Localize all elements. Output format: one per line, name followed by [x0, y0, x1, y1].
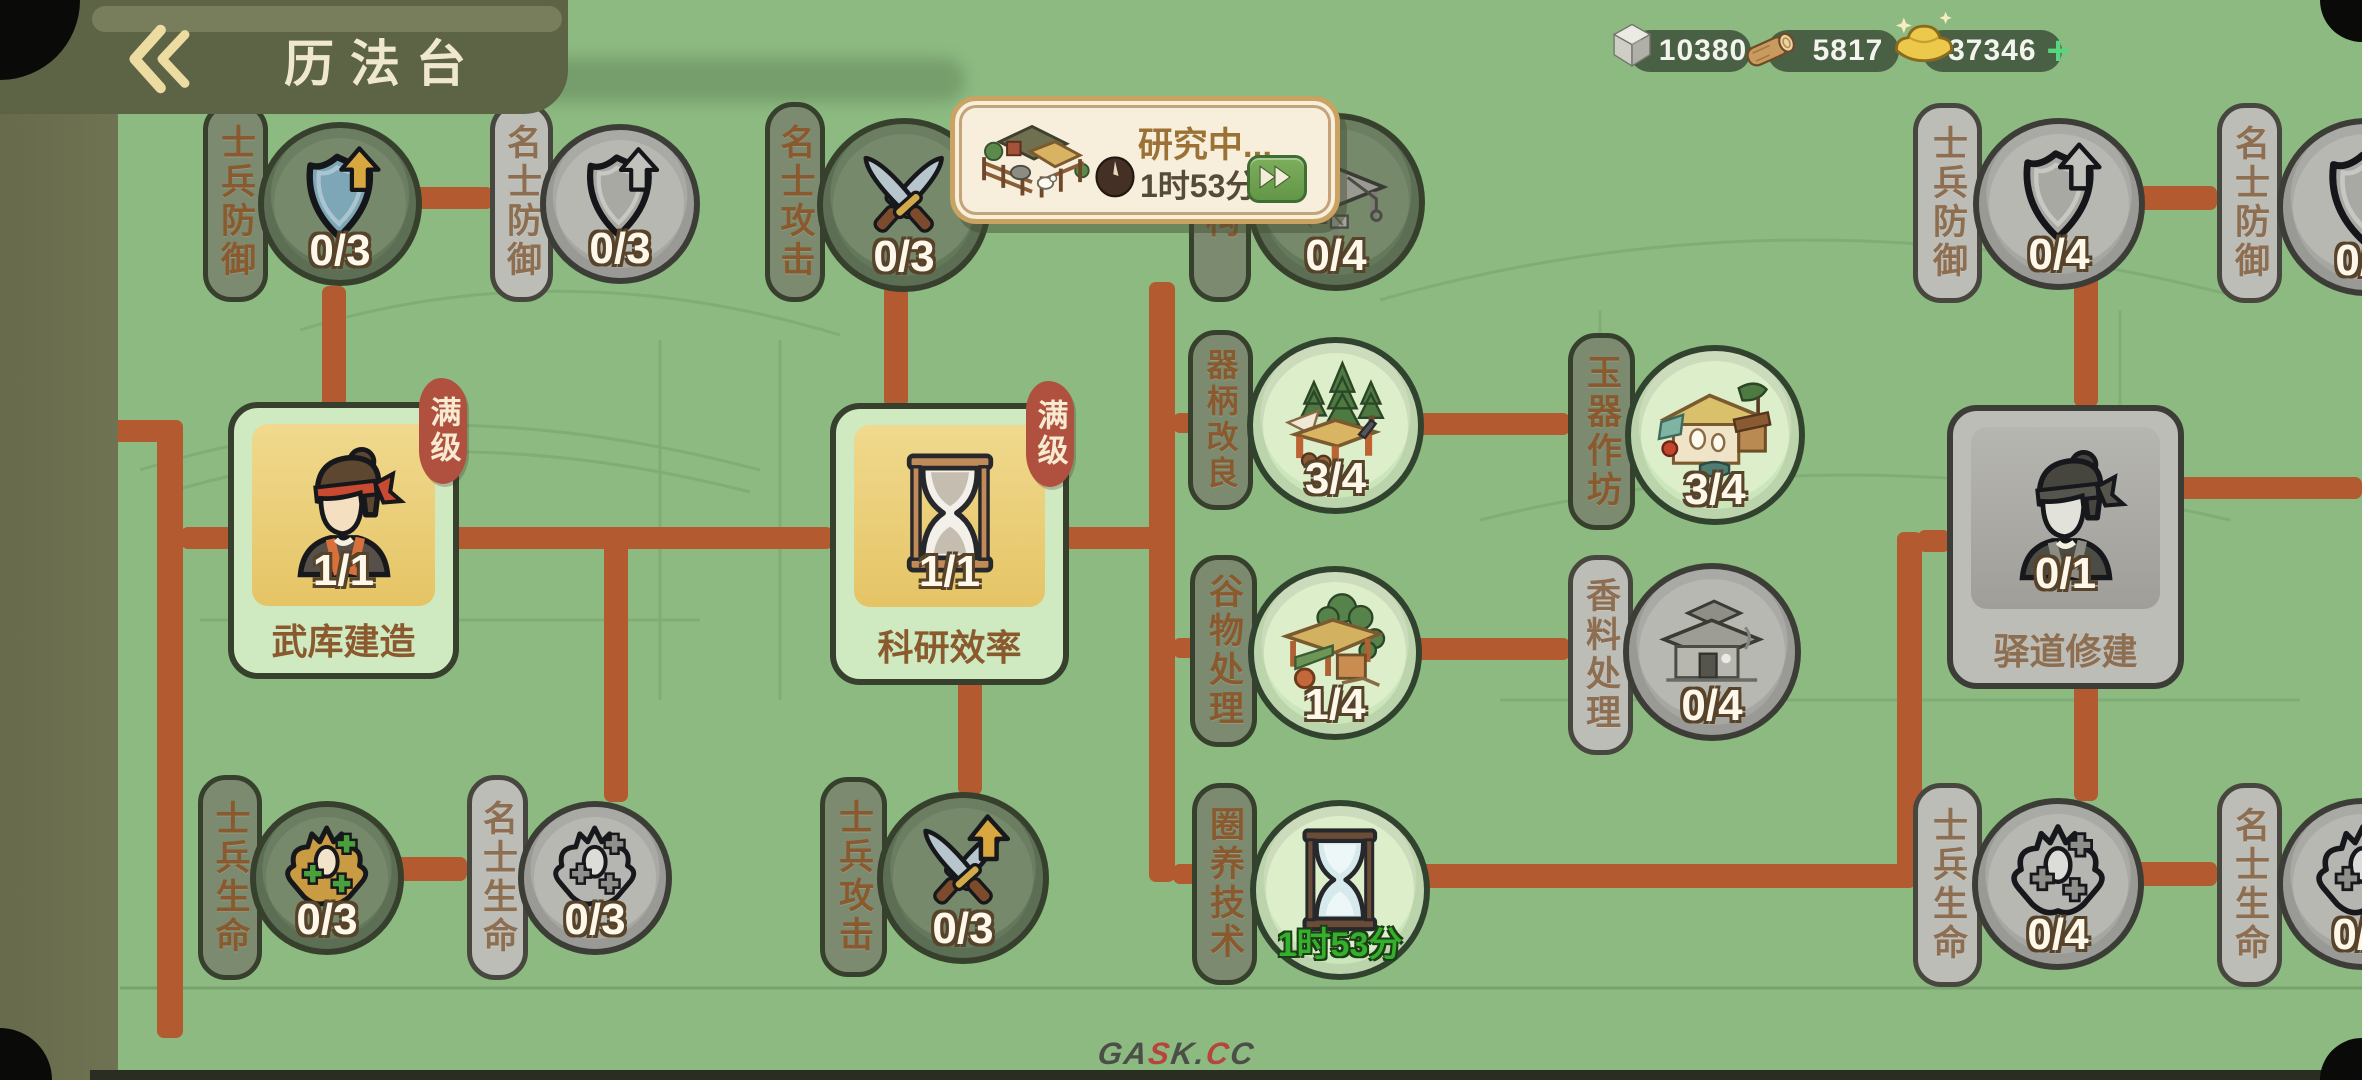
tech-level: 3/4 [1253, 454, 1418, 504]
tech-node-circle[interactable]: 0/4 [1623, 563, 1801, 741]
tech-node-name: 圈养技术 [1192, 783, 1257, 985]
tech-node-scholar-defense-left[interactable]: 名士防御 0/3 [490, 102, 690, 302]
connector [1408, 638, 1570, 660]
gold-count: 37346 [1948, 34, 2036, 68]
connector [2170, 477, 2362, 499]
wood-count: 5817 [1813, 34, 1884, 68]
connector [884, 285, 908, 407]
tech-node-circle[interactable]: 1时53分 [1250, 800, 1430, 980]
tech-node-circle[interactable]: 0/4 [2277, 118, 2362, 296]
tech-node-name: 谷物处理 [1190, 555, 1257, 747]
tech-node-name: 名士防御 [2217, 103, 2282, 303]
max-level-badge: 满级 [419, 378, 467, 484]
tech-node-scholar-defense-right[interactable]: 名士防御 0/4 [2217, 103, 2362, 303]
tech-node-circle[interactable]: 0/3 [518, 801, 672, 955]
tech-level: 0/3 [524, 895, 666, 945]
tech-level: 0/4 [1629, 681, 1795, 731]
research-popup-time: 1时53分 [1140, 161, 1257, 207]
tech-node-circle[interactable]: 0/3 [877, 792, 1049, 964]
gold-ingot-icon [1888, 6, 1960, 78]
tech-tree-screen: 士兵防御 0/3 名士防御 0/3 名士攻击 0/3 结构 0/4 士兵防御 0… [0, 0, 2362, 1080]
tech-level: 0/4 [2283, 910, 2362, 960]
research-in-progress-popup[interactable]: 研究中... 1时53分 [950, 96, 1340, 224]
tech-node-name: 器柄改良 [1188, 330, 1253, 510]
add-gold-button[interactable]: + [2047, 32, 2070, 70]
connector [322, 286, 346, 408]
tech-card-art: 0/1 [1971, 427, 2160, 609]
connector [1055, 527, 1161, 549]
tech-card-armory-construction[interactable]: 1/1 武库建造 满级 [228, 402, 459, 679]
header-bar: 历法台 [0, 0, 568, 114]
tech-level: 0/3 [546, 224, 694, 274]
tech-card-art: 1/1 [252, 424, 435, 606]
tech-node-circle[interactable]: 0/4 [2277, 798, 2362, 970]
tech-node-circle[interactable]: 1/4 [1248, 566, 1422, 740]
tech-level: 0/3 [823, 232, 985, 282]
tech-node-circle[interactable]: 0/3 [250, 801, 404, 955]
max-level-badge: 满级 [1026, 381, 1074, 487]
back-button[interactable] [118, 20, 194, 98]
tech-node-circle[interactable]: 0/4 [1972, 798, 2144, 970]
tech-node-grain-processing[interactable]: 谷物处理 1/4 [1190, 555, 1420, 745]
tech-node-pen-raising[interactable]: 圈养技术 1时53分 [1192, 783, 1422, 983]
tech-level: 3/4 [1631, 465, 1799, 515]
tech-level: 0/3 [264, 226, 416, 276]
bottom-letterbox [90, 1070, 2362, 1080]
tech-node-soldier-life-left[interactable]: 士兵生命 0/3 [198, 775, 398, 980]
tech-level: 0/4 [2283, 236, 2362, 286]
tech-level: 1/4 [1254, 680, 1416, 730]
double-chevron-right-icon [1253, 161, 1297, 193]
tech-node-circle[interactable]: 3/4 [1625, 345, 1805, 525]
tech-card-name: 驿道修建 [1953, 623, 2178, 675]
fast-forward-button[interactable] [1247, 155, 1307, 203]
tech-node-circle[interactable]: 0/4 [1973, 118, 2145, 290]
tech-node-circle[interactable]: 0/3 [540, 124, 700, 284]
tech-level: 0/4 [1978, 910, 2138, 960]
connector [604, 540, 628, 802]
tech-node-name: 名士攻击 [765, 102, 825, 302]
connector [181, 527, 233, 549]
tech-node-scholar-attack[interactable]: 名士攻击 0/3 [765, 102, 980, 302]
tech-level: 1/1 [854, 547, 1045, 597]
site-watermark: GASK.CC [1095, 1036, 1257, 1072]
tech-node-soldier-defense-right[interactable]: 士兵防御 0/4 [1913, 103, 2138, 303]
tech-level: 1/1 [252, 546, 435, 596]
connector [393, 857, 467, 881]
tech-node-circle[interactable]: 3/4 [1247, 337, 1424, 514]
connector [1408, 864, 1916, 888]
tech-node-spice-processing[interactable]: 香料处理 0/4 [1568, 555, 1798, 750]
connector [1918, 530, 1950, 552]
tech-node-circle[interactable]: 0/3 [258, 122, 422, 286]
tech-node-soldier-life-right[interactable]: 士兵生命 0/4 [1913, 783, 2138, 988]
research-time-remaining: 1时53分 [1256, 917, 1424, 966]
tech-node-scholar-life-right[interactable]: 名士生命 0/4 [2217, 783, 2362, 988]
tech-node-soldier-attack[interactable]: 士兵攻击 0/3 [820, 777, 1040, 977]
tech-level: 0/4 [1253, 231, 1419, 281]
tech-node-soldier-defense-left[interactable]: 士兵防御 0/3 [203, 102, 413, 302]
stone-icon [1604, 20, 1660, 76]
tech-level: 0/3 [883, 904, 1043, 954]
tech-level: 0/3 [256, 895, 398, 945]
connector [157, 420, 183, 1038]
tech-node-jade-workshop[interactable]: 玉器作坊 3/4 [1568, 333, 1798, 528]
tech-node-name: 名士生命 [2217, 783, 2282, 987]
tech-level: 0/1 [1971, 549, 2160, 599]
tech-node-scholar-life-left[interactable]: 名士生命 0/3 [467, 775, 667, 980]
connector [2133, 862, 2217, 886]
connector [445, 527, 833, 549]
connector [1149, 282, 1175, 882]
wood-log-icon [1740, 18, 1802, 80]
livestock-pen-building-icon [969, 113, 1097, 209]
tech-card-post-road-construction[interactable]: 0/1 驿道修建 [1947, 405, 2184, 689]
tech-card-name: 科研效率 [836, 619, 1063, 671]
tech-node-name: 士兵防御 [1913, 103, 1982, 303]
tech-card-art: 1/1 [854, 425, 1045, 607]
tech-card-research-efficiency[interactable]: 1/1 科研效率 满级 [830, 403, 1069, 685]
page-title: 历法台 [284, 24, 482, 96]
left-letterbox [0, 0, 118, 1080]
connector [2133, 186, 2217, 210]
connector [1410, 413, 1570, 435]
tech-card-name: 武库建造 [234, 613, 453, 665]
stone-count: 10380 [1659, 34, 1747, 68]
tech-node-tool-handle-improvement[interactable]: 器柄改良 3/4 [1188, 330, 1418, 510]
tech-level: 0/4 [1979, 230, 2139, 280]
clock-icon [1093, 153, 1137, 199]
